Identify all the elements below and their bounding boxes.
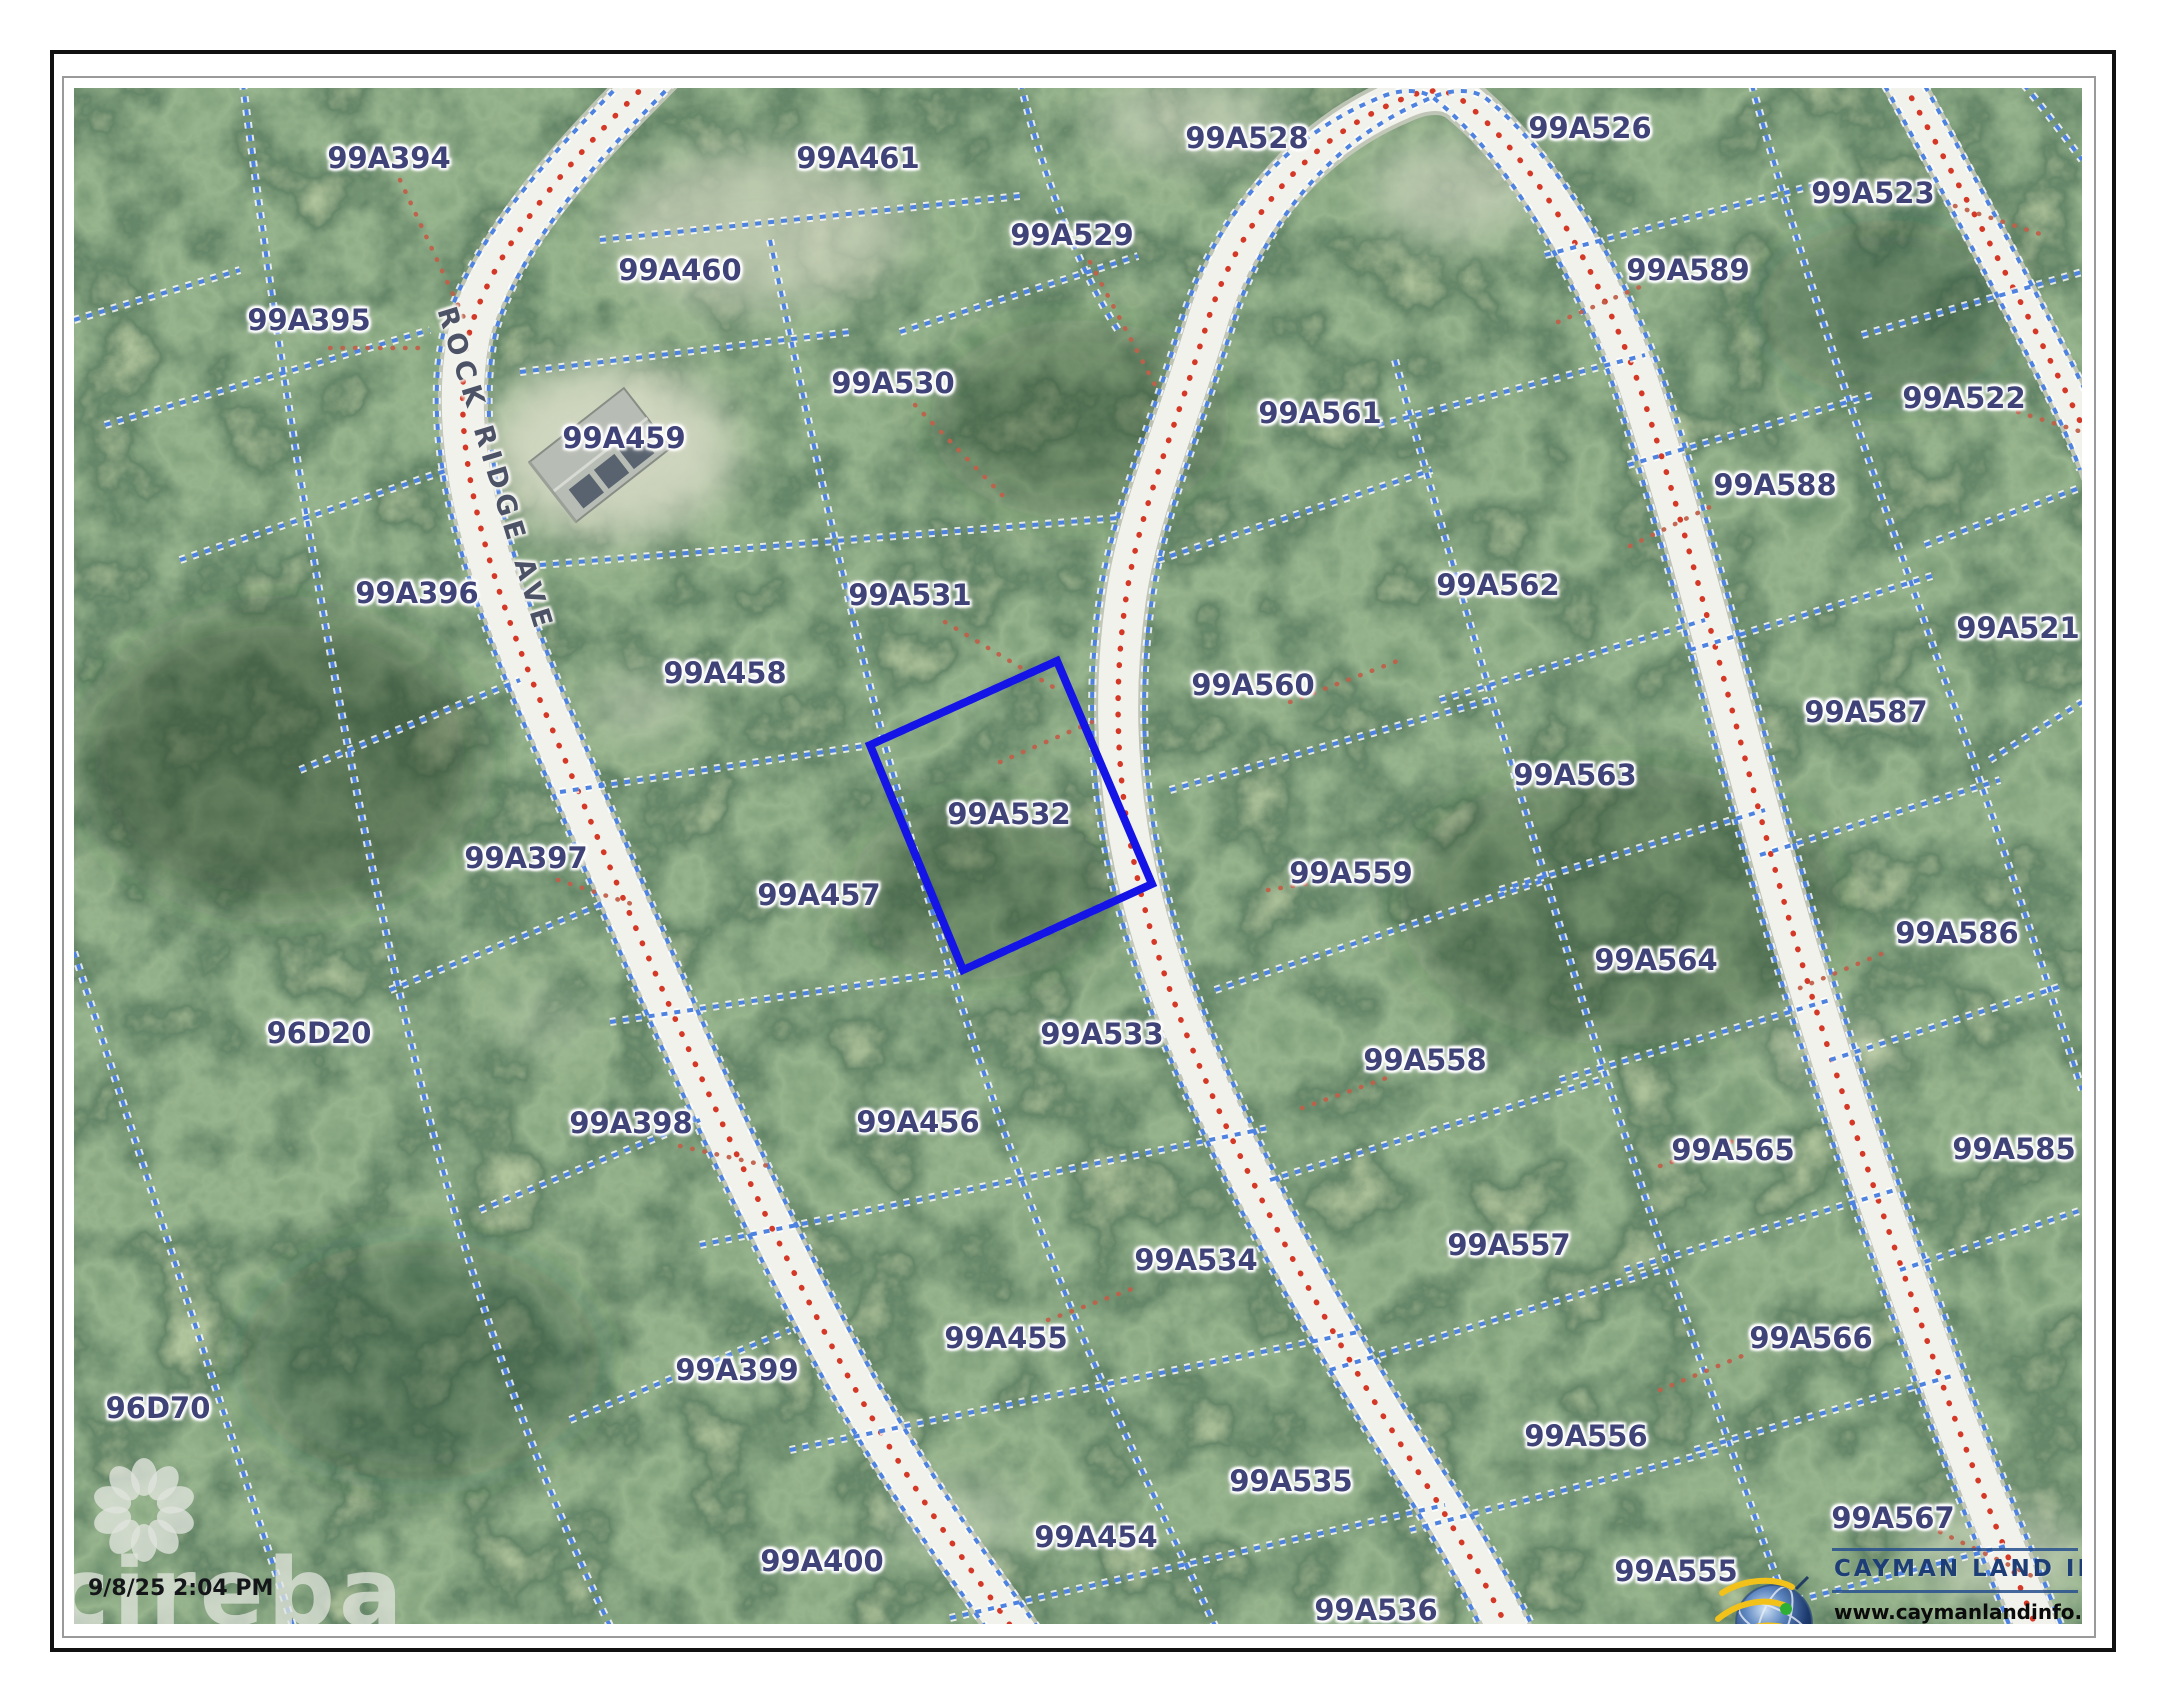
logo-rule-bottom [1832, 1590, 2078, 1593]
logo-url[interactable]: www.caymanlandinfo.ky [1834, 1600, 2080, 1624]
page: 99A39499A46199A52899A52699A52399A39599A4… [0, 0, 2168, 1700]
cayman-land-info-logo: CAYMAN LAND INFO www.caymanlandinfo.ky [1714, 1508, 2082, 1624]
map-canvas: 99A39499A46199A52899A52699A52399A39599A4… [74, 88, 2082, 1624]
logo-title: CAYMAN LAND INFO [1834, 1556, 2080, 1582]
timestamp: 9/8/25 2:04 PM [88, 1576, 273, 1601]
logo-rule-top [1832, 1548, 2078, 1551]
satellite-map-image [74, 88, 2082, 1624]
globe-icon [1714, 1563, 1834, 1624]
